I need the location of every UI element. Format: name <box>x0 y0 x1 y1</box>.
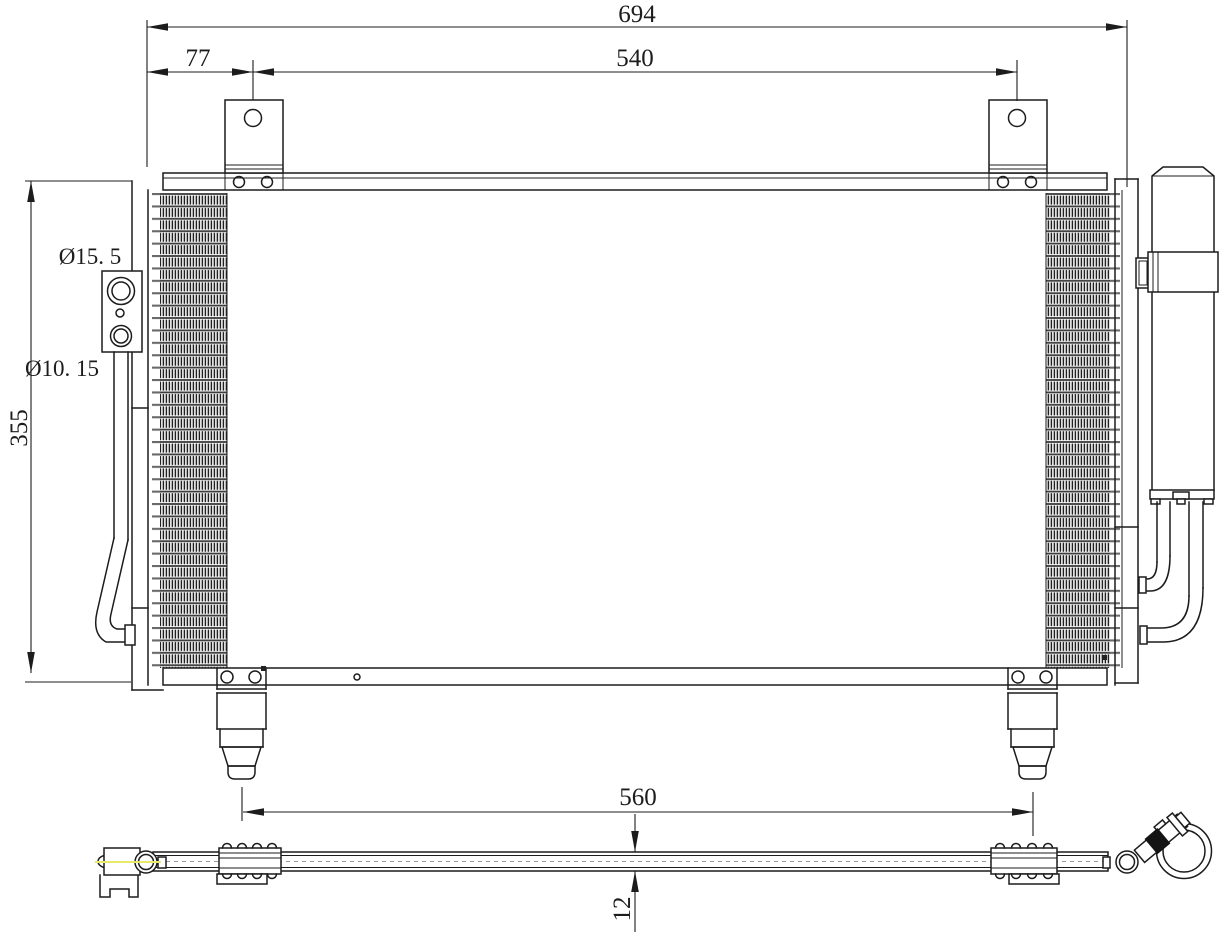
port-label-small: Ø10. 15 <box>25 356 99 381</box>
drier-pipes <box>1139 502 1203 644</box>
dimension-mount-span: 77 540 <box>147 45 1017 101</box>
dimension-thickness: 12 <box>609 814 639 932</box>
bottom-view-bar <box>150 852 1110 871</box>
weld-nub-right <box>1102 655 1107 660</box>
dimension-foot-span: 560 <box>242 784 1033 836</box>
bottom-right-drier-section <box>1103 808 1212 879</box>
fin-band-left <box>160 193 227 668</box>
dim-thickness-label: 12 <box>609 897 636 922</box>
weld-nub-left <box>261 666 266 671</box>
dim-overall-width-label: 694 <box>618 1 656 28</box>
top-header <box>163 173 1107 190</box>
dim-core-height-label: 355 <box>6 409 33 447</box>
dim-mount-offset-label: 77 <box>186 45 211 72</box>
drier-bottom-flange <box>1150 490 1214 504</box>
inlet-fitting-block <box>102 271 142 352</box>
port-label-large: Ø15. 5 <box>59 244 122 269</box>
bottom-view <box>95 808 1212 897</box>
bottom-block-left <box>217 844 281 885</box>
front-view <box>25 100 1218 779</box>
bottom-header <box>163 668 1107 685</box>
fin-band-right <box>1046 193 1110 668</box>
fitting-bracket <box>100 875 138 897</box>
left-pipe <box>96 352 135 645</box>
bottom-block-right <box>991 844 1059 885</box>
technical-drawing-canvas: 694 77 540 355 Ø15. 5 Ø10. 15 <box>0 0 1220 934</box>
dim-mount-span-label: 540 <box>616 45 654 72</box>
bottom-left-fitting <box>95 848 166 897</box>
drier-clamp <box>1136 252 1218 292</box>
dimension-overall-width: 694 <box>147 1 1127 187</box>
dim-foot-span-label: 560 <box>619 784 657 811</box>
condenser-core <box>152 193 1120 668</box>
receiver-drier <box>1136 167 1218 644</box>
